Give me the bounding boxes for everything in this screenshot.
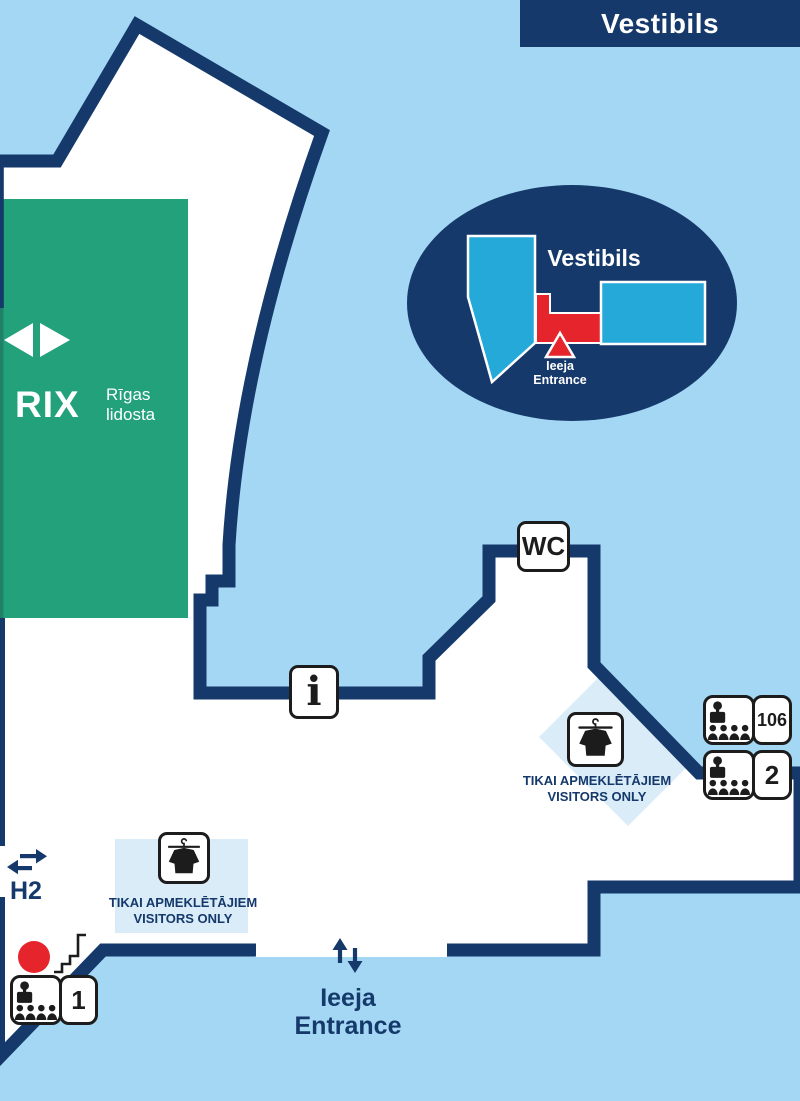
information-sign: i xyxy=(289,665,339,719)
map-canvas xyxy=(0,0,800,1101)
room-number: 2 xyxy=(752,750,792,800)
logo-subtitle-line2: lidosta xyxy=(106,405,155,425)
room-sign-106: 106 xyxy=(703,695,792,745)
rix-logo-subtitle: Rīgas lidosta xyxy=(106,385,155,425)
audience-icon-cell xyxy=(703,695,755,745)
entrance-label: Ieeja Entrance xyxy=(260,984,436,1040)
room-sign-1: 1 xyxy=(10,975,98,1025)
page-title: Vestibils xyxy=(601,8,719,39)
reception-and-audience-icon xyxy=(707,700,751,740)
visitors-only-line2: VISITORS ONLY xyxy=(507,789,687,805)
coat-on-hanger-icon xyxy=(162,836,206,880)
reception-and-audience-icon xyxy=(14,980,58,1020)
coat-check-sign-right xyxy=(567,712,624,767)
visitors-only-line2: VISITORS ONLY xyxy=(93,911,273,927)
audience-icon-cell xyxy=(10,975,62,1025)
entrance-label-lv: Ieeja xyxy=(260,984,436,1012)
page-title-banner: Vestibils xyxy=(520,0,800,47)
room-sign-2: 2 xyxy=(703,750,792,800)
terminal-floor-map: Vestibils RIX Rīgas lidosta Vestibils Ie… xyxy=(0,0,800,1101)
inset-entrance-label-en: Entrance xyxy=(510,374,610,387)
room-number: 1 xyxy=(59,975,98,1025)
reception-and-audience-icon xyxy=(707,755,751,795)
h2-exit-label: H2 xyxy=(10,877,42,906)
audience-icon-cell xyxy=(703,750,755,800)
rix-logo-text: RIX xyxy=(15,386,80,423)
red-location-dot xyxy=(18,941,50,973)
inset-entrance-label-lv: Ieeja xyxy=(510,360,610,373)
visitors-only-label-left: TIKAI APMEKLĒTĀJIEM VISITORS ONLY xyxy=(93,895,273,927)
inset-title: Vestibils xyxy=(494,245,694,272)
logo-subtitle-line1: Rīgas xyxy=(106,385,155,405)
visitors-only-label-right: TIKAI APMEKLĒTĀJIEM VISITORS ONLY xyxy=(507,773,687,805)
inset-hall-right xyxy=(601,282,705,344)
visitors-only-line1: TIKAI APMEKLĒTĀJIEM xyxy=(93,895,273,911)
entrance-label-en: Entrance xyxy=(260,1012,436,1040)
wc-sign: WC xyxy=(517,521,570,572)
coat-check-sign-left xyxy=(158,832,210,884)
coat-on-hanger-icon xyxy=(572,716,619,763)
visitors-only-line1: TIKAI APMEKLĒTĀJIEM xyxy=(507,773,687,789)
room-number: 106 xyxy=(752,695,792,745)
